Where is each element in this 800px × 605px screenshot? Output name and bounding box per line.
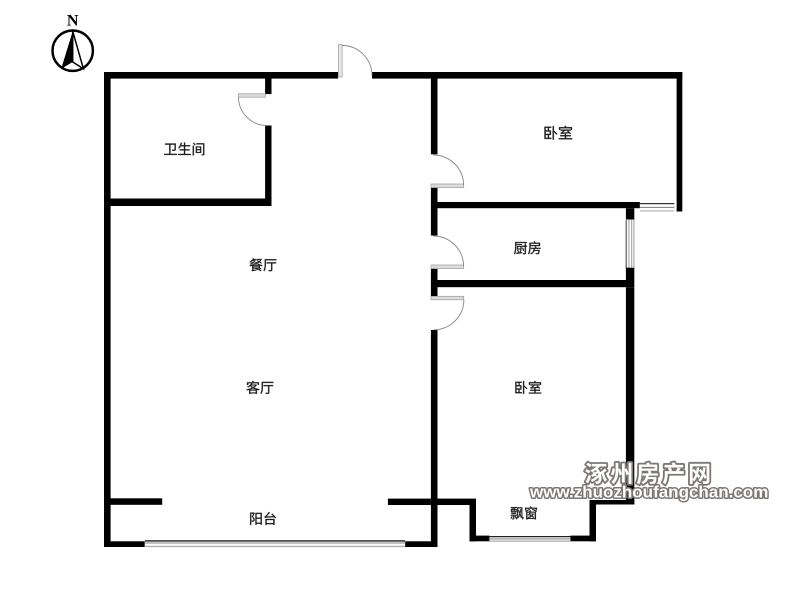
svg-text:www.zhuozhoufangchan.com: www.zhuozhoufangchan.com bbox=[529, 483, 768, 502]
svg-text:N: N bbox=[67, 13, 79, 30]
